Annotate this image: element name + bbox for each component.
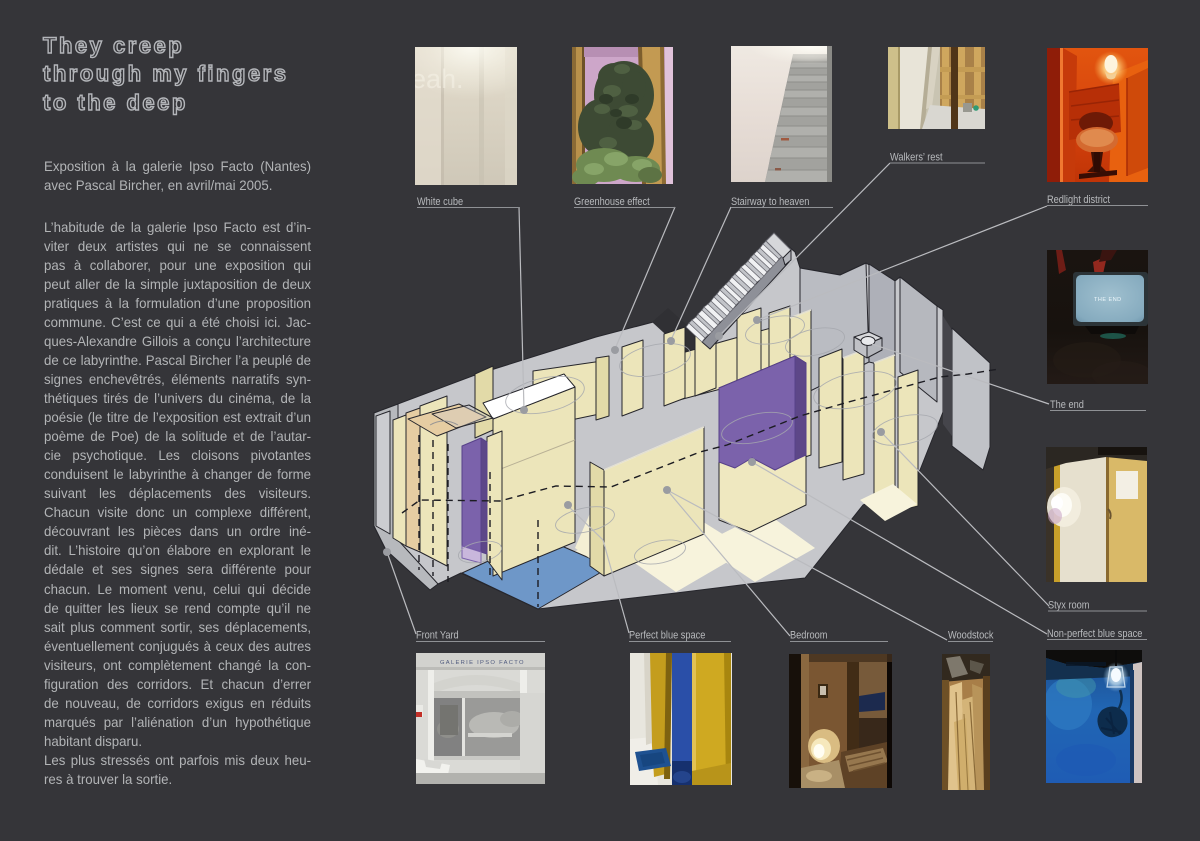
svg-text:Walkers’ rest: Walkers’ rest bbox=[890, 152, 943, 164]
svg-text:Perfect blue space: Perfect blue space bbox=[629, 630, 706, 642]
svg-text:Bedroom: Bedroom bbox=[790, 630, 827, 642]
svg-text:Front Yard: Front Yard bbox=[416, 630, 459, 642]
svg-text:Greenhouse effect: Greenhouse effect bbox=[574, 196, 650, 208]
svg-text:Stairway to heaven: Stairway to heaven bbox=[731, 196, 809, 208]
svg-text:GALERIE IPSO FACTO: GALERIE IPSO FACTO bbox=[440, 660, 525, 666]
svg-text:Woodstock: Woodstock bbox=[948, 630, 994, 642]
svg-text:THE END: THE END bbox=[1094, 297, 1122, 303]
svg-text:Styx room: Styx room bbox=[1048, 600, 1090, 612]
svg-text:Non-perfect blue space: Non-perfect blue space bbox=[1047, 628, 1143, 640]
svg-text:The end: The end bbox=[1050, 399, 1084, 411]
svg-text:White cube: White cube bbox=[417, 196, 463, 208]
svg-text:eah.: eah. bbox=[415, 64, 464, 94]
svg-text:Redlight district: Redlight district bbox=[1047, 194, 1110, 206]
